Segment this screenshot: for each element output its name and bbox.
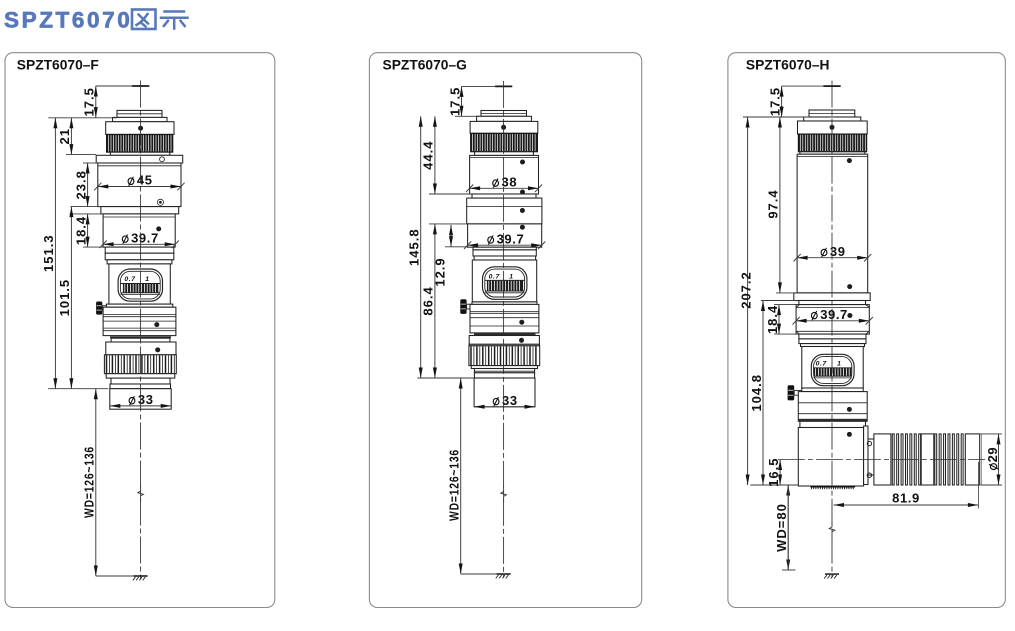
- svg-text:1: 1: [509, 273, 513, 280]
- svg-text:97.4: 97.4: [766, 189, 781, 218]
- svg-text:23.8: 23.8: [73, 170, 88, 199]
- svg-text:17.5: 17.5: [447, 87, 462, 116]
- svg-text:18.4: 18.4: [765, 305, 780, 334]
- svg-text:1: 1: [145, 276, 149, 283]
- svg-text:21: 21: [57, 128, 72, 144]
- svg-text:81.9: 81.9: [892, 491, 920, 506]
- svg-text:WD=80: WD=80: [774, 503, 789, 552]
- svg-text:12.9: 12.9: [433, 257, 448, 286]
- svg-text:0.7: 0.7: [816, 361, 828, 368]
- svg-text:39.7: 39.7: [131, 231, 159, 246]
- svg-text:16.5: 16.5: [766, 458, 781, 487]
- svg-text:WD=126~136: WD=126~136: [447, 449, 462, 521]
- svg-text:39.7: 39.7: [820, 307, 848, 322]
- svg-text:33: 33: [502, 393, 518, 408]
- svg-text:17.5: 17.5: [82, 87, 97, 116]
- svg-text:151.3: 151.3: [41, 234, 56, 272]
- svg-text:0.7: 0.7: [124, 276, 136, 283]
- svg-text:45: 45: [137, 173, 153, 188]
- svg-text:29: 29: [985, 447, 1000, 463]
- svg-text:SPZT6070–G: SPZT6070–G: [383, 57, 467, 72]
- svg-text:0.7: 0.7: [489, 273, 501, 280]
- svg-text:1: 1: [837, 361, 841, 368]
- svg-text:39.7: 39.7: [497, 231, 525, 246]
- svg-text:86.4: 86.4: [421, 286, 436, 315]
- svg-text:145.8: 145.8: [407, 228, 422, 266]
- svg-text:17.5: 17.5: [767, 87, 782, 116]
- svg-text:104.8: 104.8: [749, 374, 764, 412]
- svg-text:SPZT6070–F: SPZT6070–F: [17, 57, 99, 72]
- svg-text:101.5: 101.5: [57, 279, 72, 317]
- svg-text:18.4: 18.4: [73, 216, 88, 245]
- svg-text:SPZT6070–H: SPZT6070–H: [746, 57, 830, 72]
- svg-text:44.4: 44.4: [421, 141, 436, 170]
- svg-text:207.2: 207.2: [739, 271, 754, 309]
- svg-text:WD=126~136: WD=126~136: [82, 446, 97, 518]
- svg-text:SPZT6070: SPZT6070: [4, 7, 132, 32]
